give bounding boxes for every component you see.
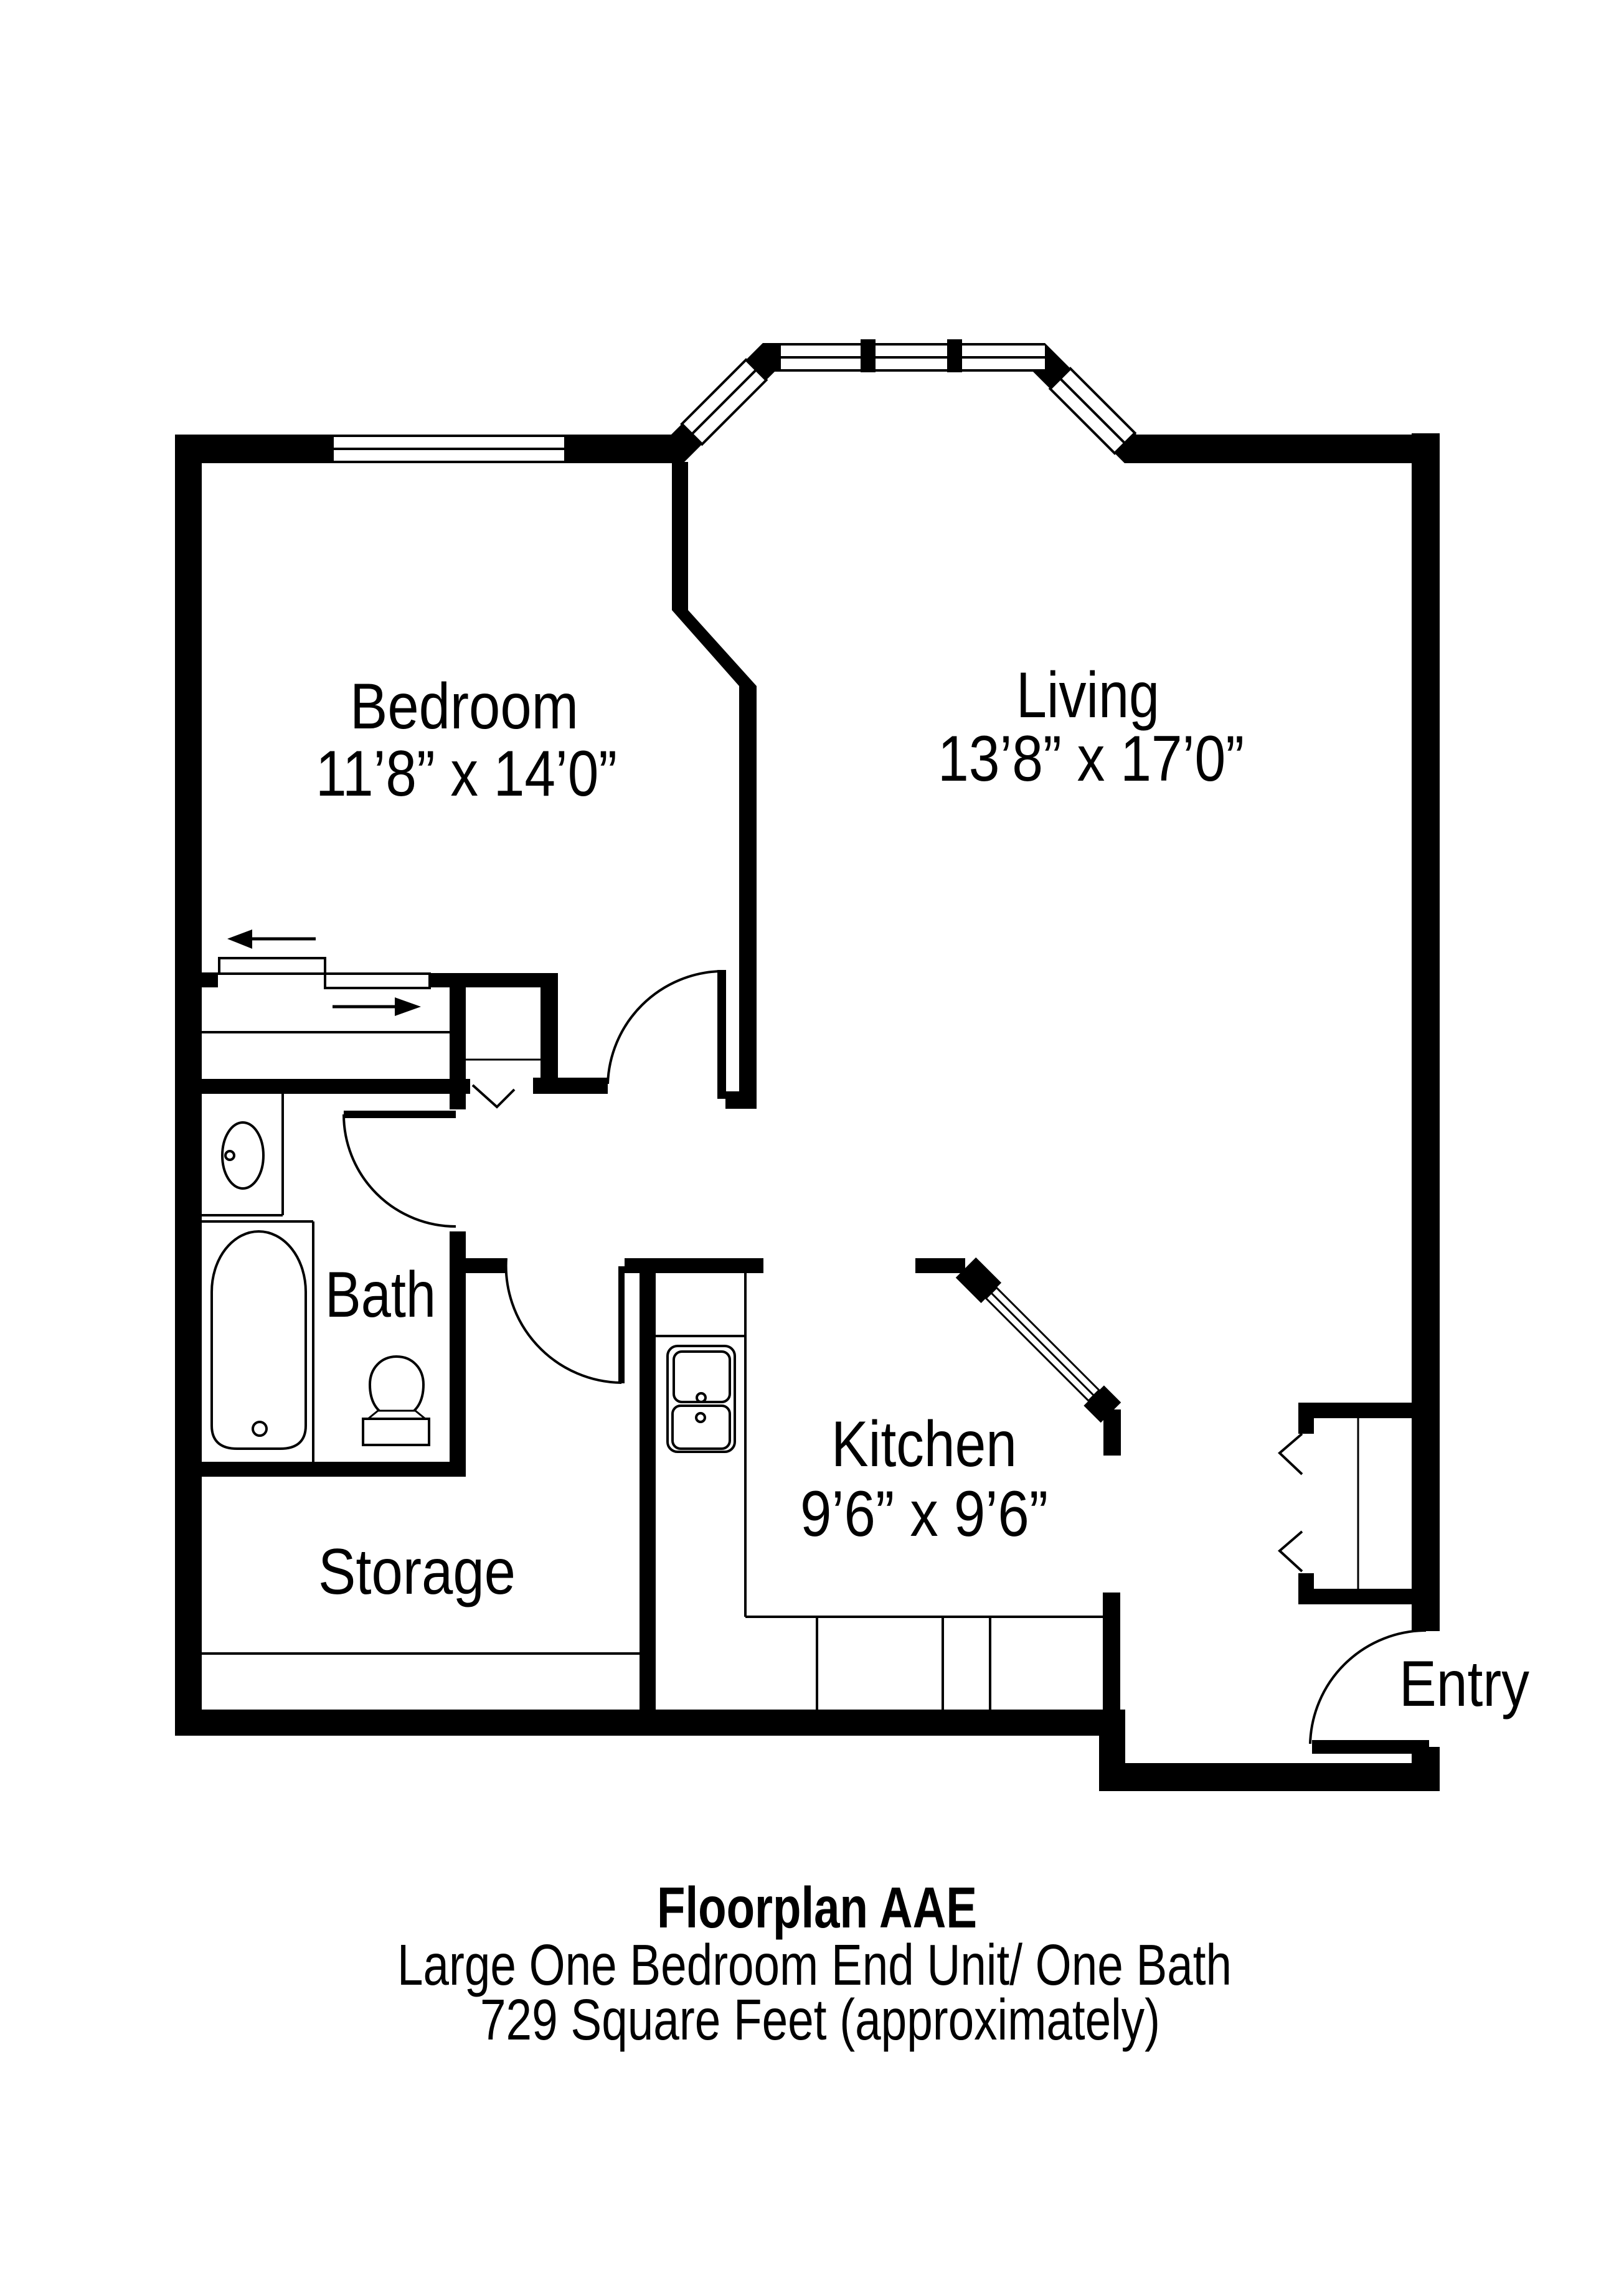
svg-text:Kitchen: Kitchen	[831, 1408, 1017, 1480]
svg-text:Entry: Entry	[1399, 1648, 1529, 1720]
svg-text:Storage: Storage	[318, 1536, 516, 1608]
svg-text:13’8” x 17’0”: 13’8” x 17’0”	[938, 723, 1244, 795]
svg-text:11’8” x 14’0”: 11’8” x 14’0”	[316, 738, 617, 810]
svg-text:Bedroom: Bedroom	[350, 670, 578, 743]
svg-text:Living: Living	[1016, 659, 1159, 732]
svg-text:Floorplan AAE: Floorplan AAE	[657, 1875, 977, 1940]
svg-text:Bath: Bath	[325, 1259, 436, 1331]
svg-text:9’6” x 9’6”: 9’6” x 9’6”	[800, 1478, 1048, 1550]
svg-text:729 Square Feet (approximately: 729 Square Feet (approximately)	[480, 1987, 1160, 2052]
